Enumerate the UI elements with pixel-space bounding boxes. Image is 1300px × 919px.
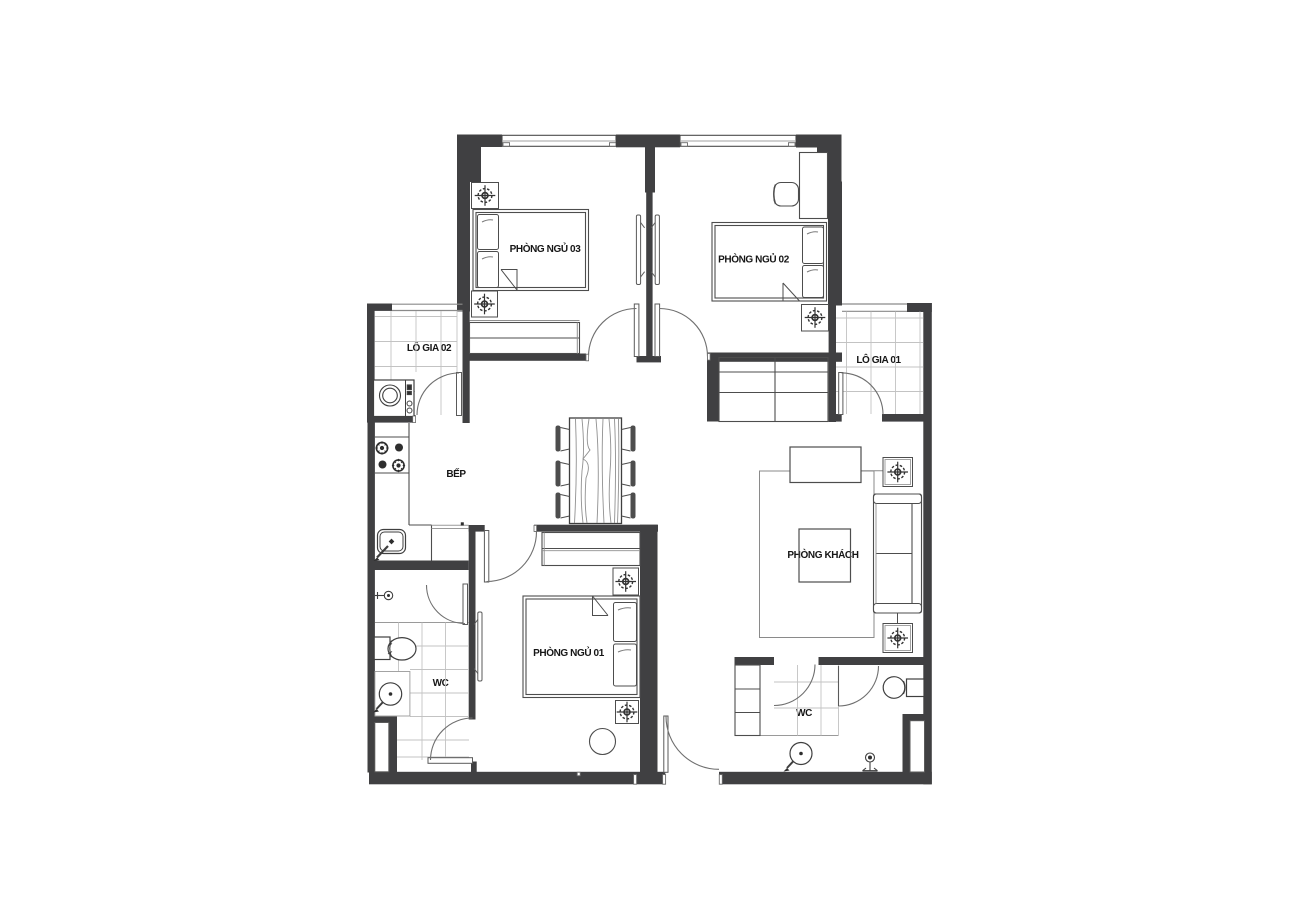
svg-text:LÔ GIA 02: LÔ GIA 02	[407, 341, 452, 354]
svg-text:PHÒNG NGỦ 03: PHÒNG NGỦ 03	[510, 242, 582, 255]
svg-text:PHÒNG NGỦ 01: PHÒNG NGỦ 01	[533, 646, 605, 659]
svg-text:WC: WC	[796, 708, 812, 719]
svg-text:PHÒNG NGỦ 02: PHÒNG NGỦ 02	[718, 253, 790, 266]
svg-text:WC: WC	[433, 678, 449, 689]
svg-text:LÔ GIA 01: LÔ GIA 01	[856, 353, 901, 366]
svg-text:BẾP: BẾP	[446, 467, 466, 480]
svg-text:PHÒNG KHÁCH: PHÒNG KHÁCH	[787, 548, 858, 561]
